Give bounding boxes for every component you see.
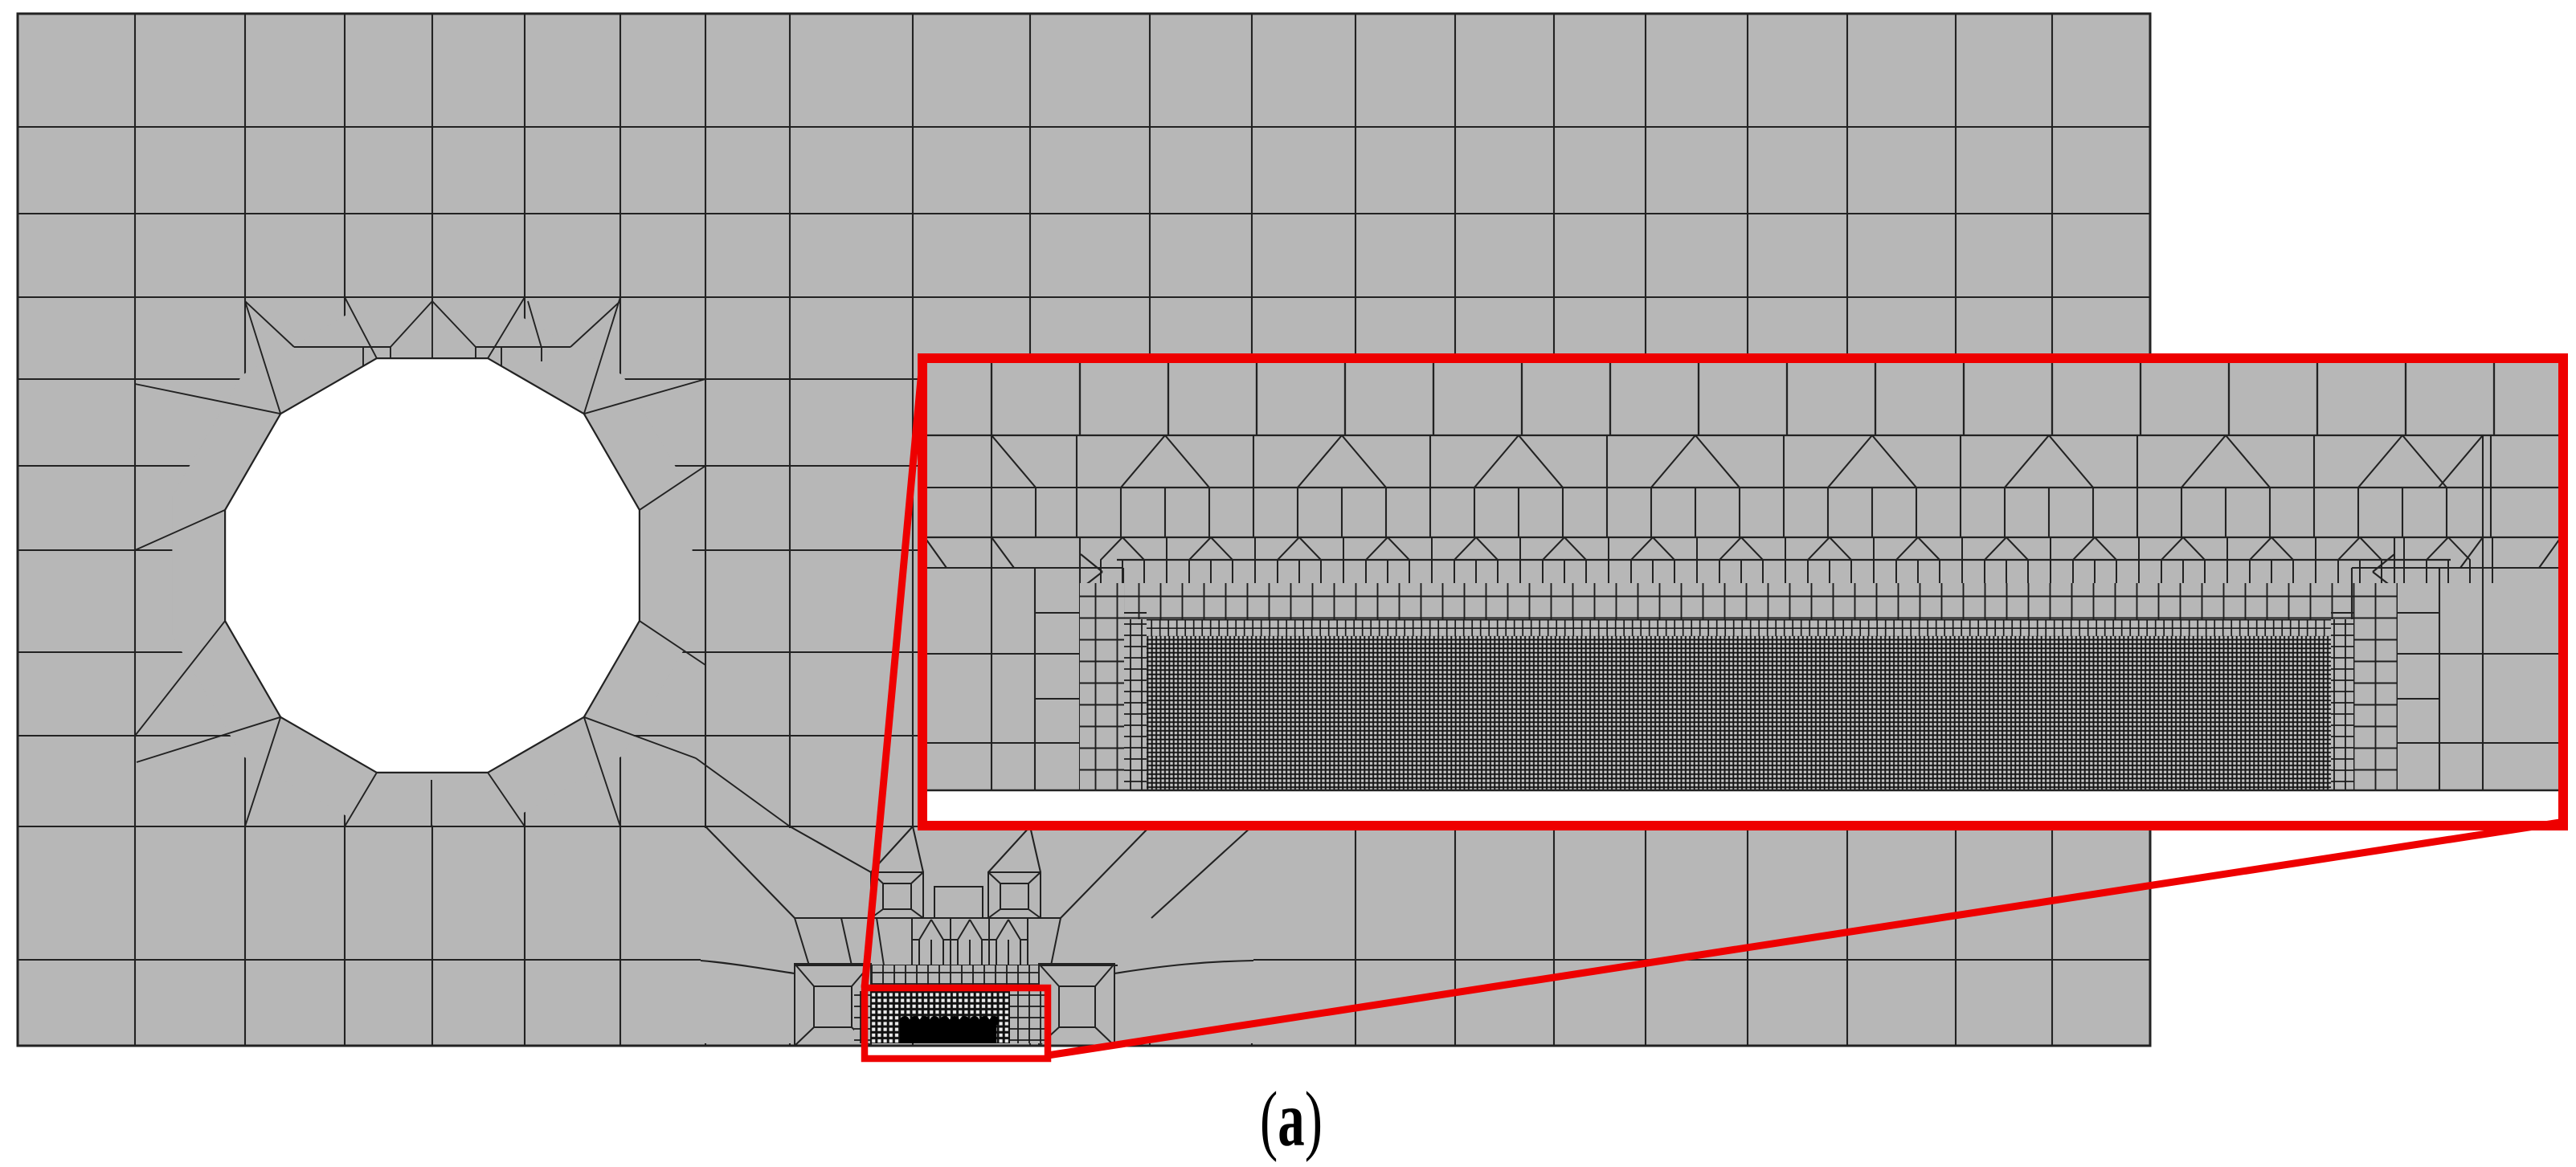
svg-text:(a): (a) <box>1260 1076 1323 1162</box>
